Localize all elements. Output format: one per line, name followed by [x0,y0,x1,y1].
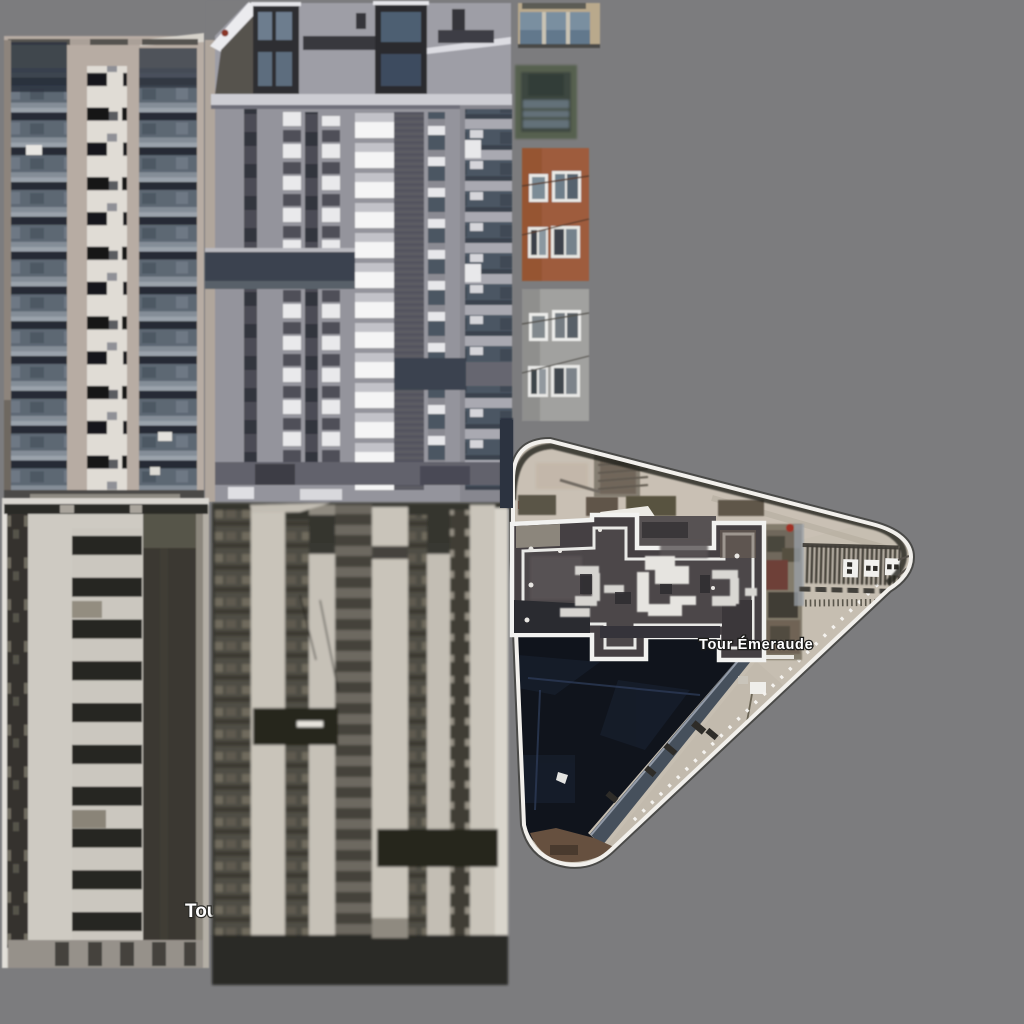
svg-text:Tour Émeraude: Tour Émeraude [699,636,813,653]
